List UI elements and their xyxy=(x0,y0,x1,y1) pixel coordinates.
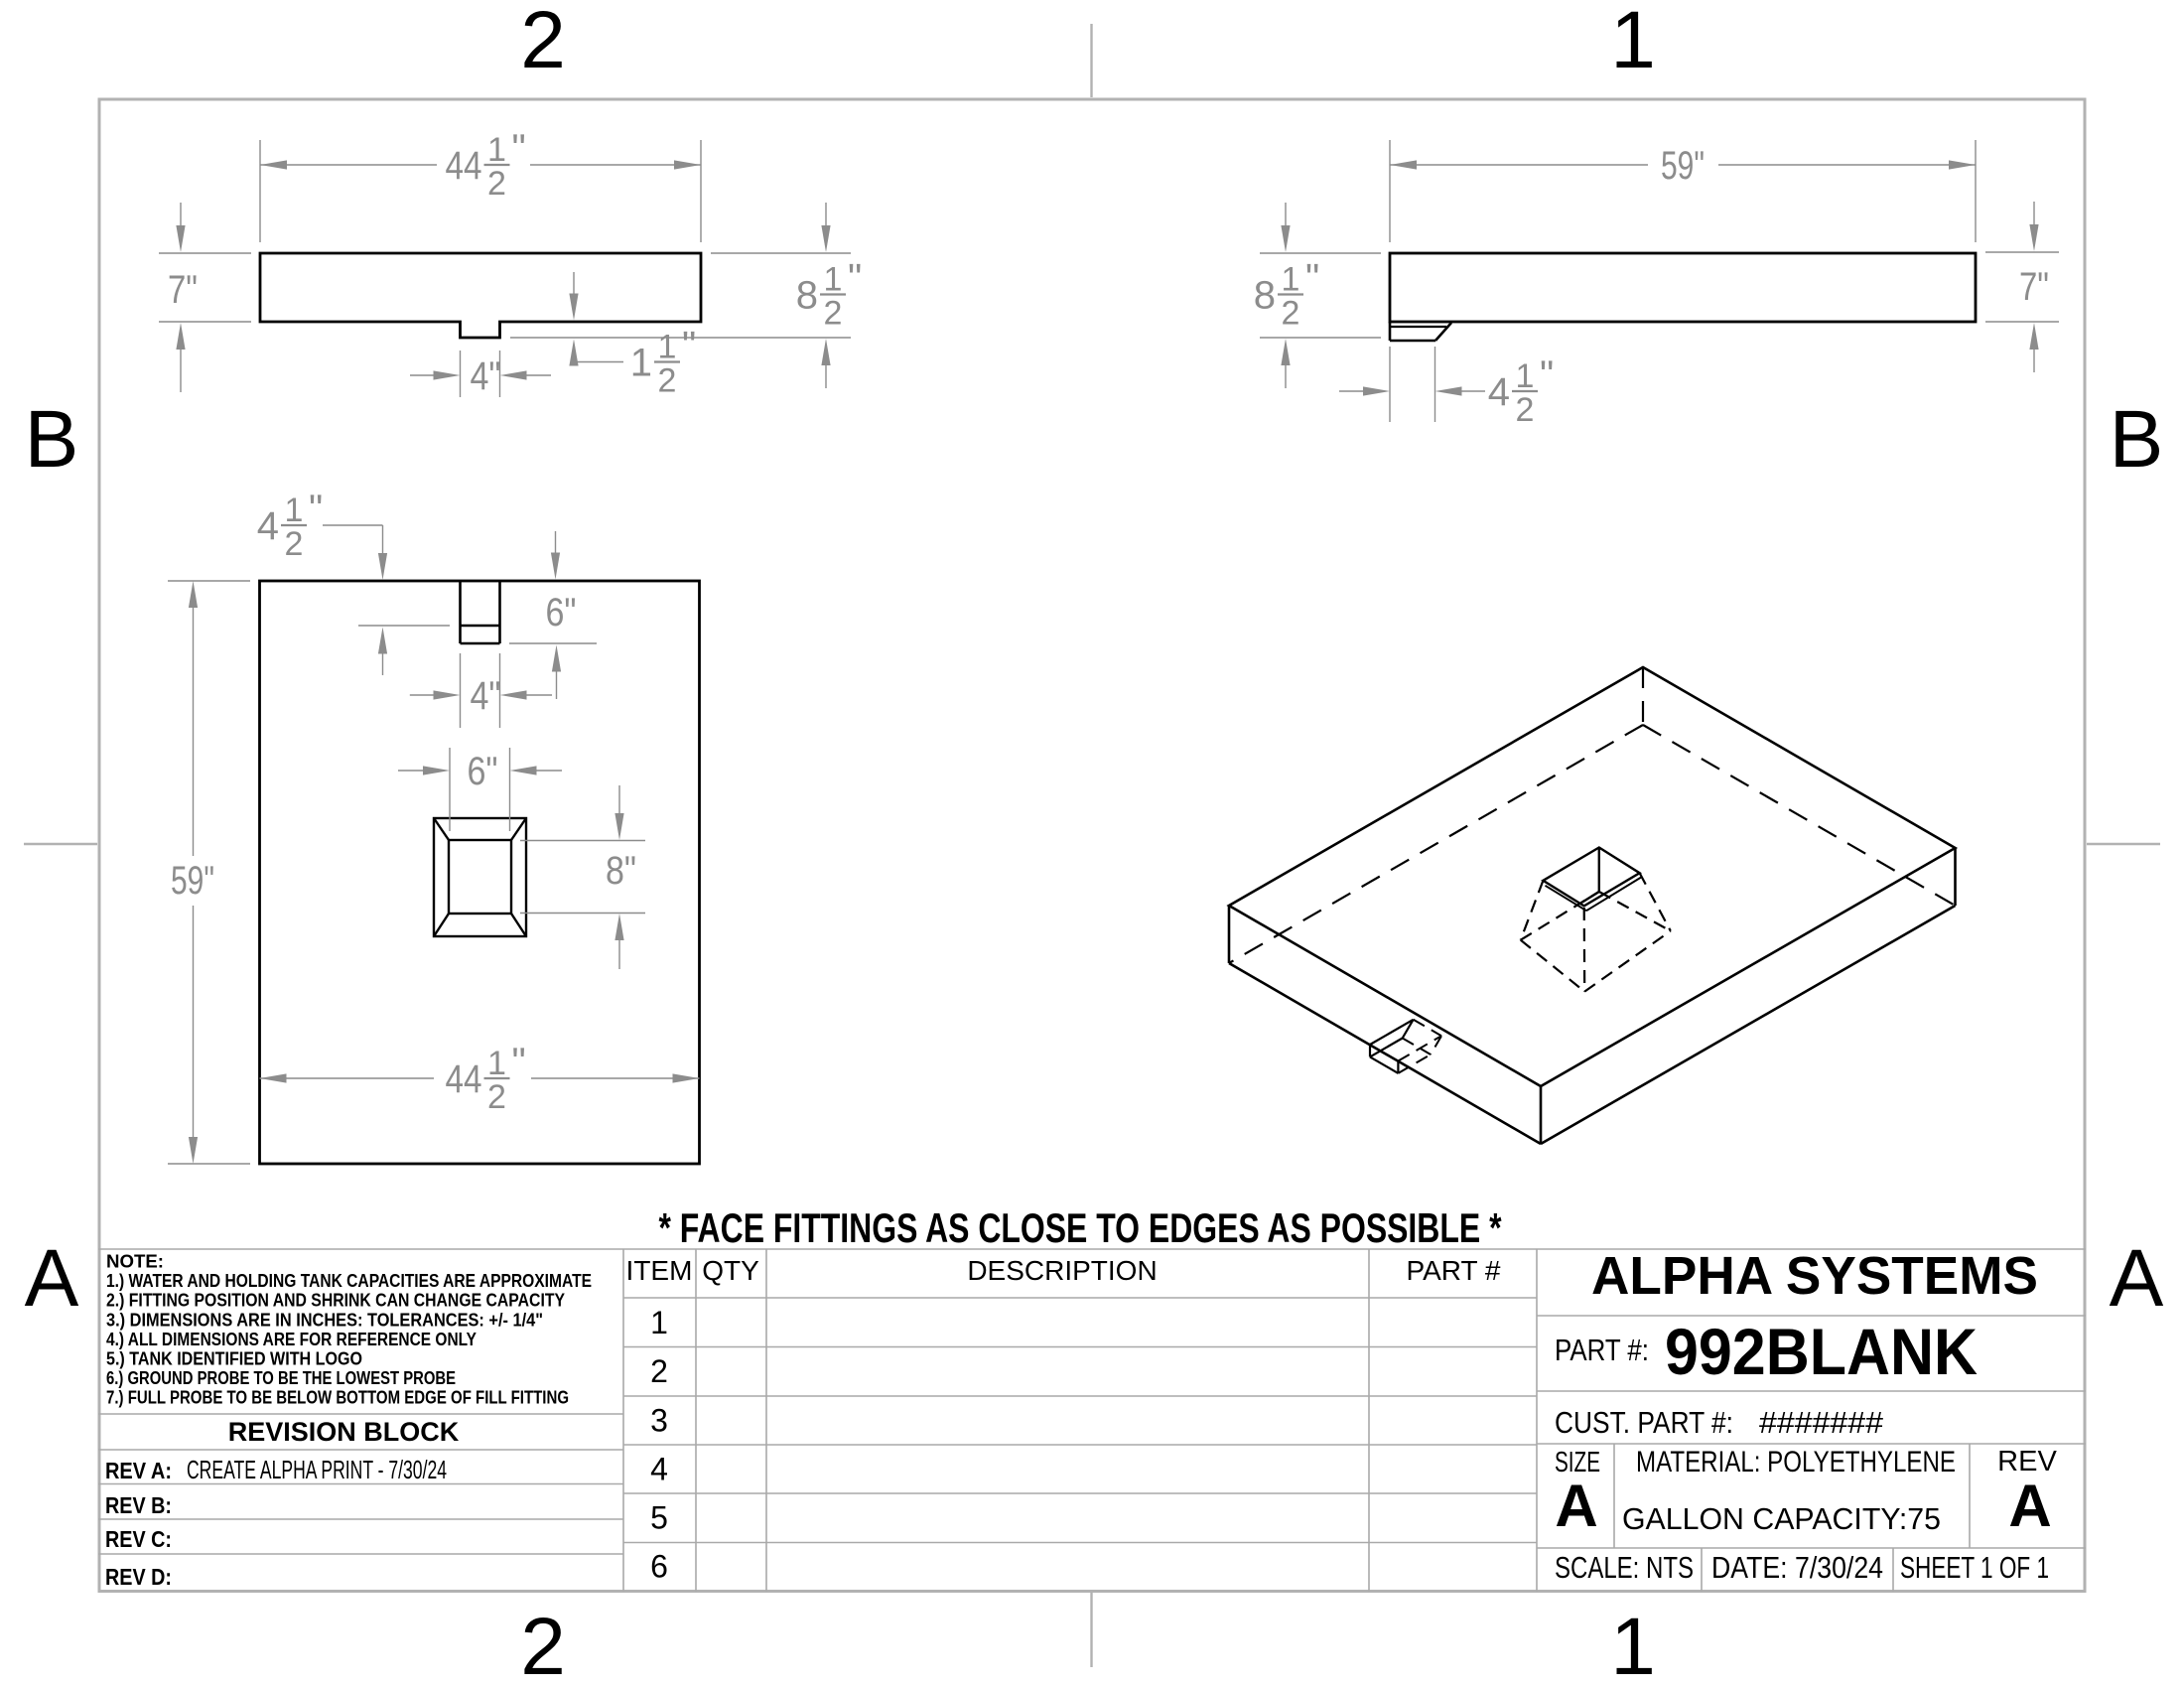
svg-text:* FACE FITTINGS AS CLOSE TO ED: * FACE FITTINGS AS CLOSE TO EDGES AS POS… xyxy=(659,1204,1502,1251)
svg-text:": " xyxy=(682,325,696,368)
svg-text:": " xyxy=(1305,257,1319,301)
svg-text:1: 1 xyxy=(658,329,677,366)
svg-text:2: 2 xyxy=(650,1353,668,1389)
svg-text:4: 4 xyxy=(1488,370,1510,414)
svg-text:": " xyxy=(1540,353,1554,397)
svg-text:2: 2 xyxy=(487,1078,506,1116)
svg-text:2: 2 xyxy=(520,1602,566,1688)
svg-text:7": 7" xyxy=(168,268,198,312)
svg-text:B: B xyxy=(2110,394,2164,485)
svg-text:6: 6 xyxy=(650,1549,668,1585)
svg-text:A: A xyxy=(1555,1473,1597,1539)
svg-text:2: 2 xyxy=(1516,391,1535,429)
svg-text:MATERIAL: POLYETHYLENE: MATERIAL: POLYETHYLENE xyxy=(1636,1446,1956,1478)
svg-text:2.) FITTING POSITION AND SHRIN: 2.) FITTING POSITION AND SHRINK CAN CHAN… xyxy=(106,1291,565,1311)
svg-text:1: 1 xyxy=(1282,261,1300,299)
svg-text:QTY: QTY xyxy=(702,1255,759,1286)
svg-text:44: 44 xyxy=(446,144,482,188)
svg-text:": " xyxy=(512,127,526,171)
svg-text:1: 1 xyxy=(1610,1602,1656,1688)
svg-text:B: B xyxy=(25,394,79,485)
svg-text:2: 2 xyxy=(520,0,566,85)
svg-text:5.) TANK IDENTIFIED WITH LOGO: 5.) TANK IDENTIFIED WITH LOGO xyxy=(106,1349,362,1369)
svg-text:REV B:: REV B: xyxy=(105,1492,172,1518)
svg-text:PART #: PART # xyxy=(1407,1255,1501,1286)
svg-text:2: 2 xyxy=(1282,295,1300,333)
svg-text:GALLON CAPACITY:75: GALLON CAPACITY:75 xyxy=(1622,1501,1941,1536)
svg-text:CUST. PART #:: CUST. PART #: xyxy=(1555,1405,1733,1440)
svg-text:1: 1 xyxy=(630,342,652,385)
svg-text:SCALE: NTS: SCALE: NTS xyxy=(1555,1550,1694,1585)
svg-text:8: 8 xyxy=(1254,274,1276,318)
svg-text:8": 8" xyxy=(606,849,636,893)
svg-text:4: 4 xyxy=(257,504,279,548)
svg-text:1: 1 xyxy=(650,1305,668,1340)
svg-text:ALPHA SYSTEMS: ALPHA SYSTEMS xyxy=(1591,1246,2038,1306)
svg-text:": " xyxy=(309,488,323,531)
svg-text:6": 6" xyxy=(546,591,577,634)
svg-text:1: 1 xyxy=(1516,357,1535,395)
svg-text:CREATE ALPHA PRINT - 7/30/24: CREATE ALPHA PRINT - 7/30/24 xyxy=(187,1455,447,1484)
svg-text:DESCRIPTION: DESCRIPTION xyxy=(967,1255,1157,1286)
svg-text:REV D:: REV D: xyxy=(105,1564,172,1590)
svg-text:59": 59" xyxy=(1661,144,1705,188)
svg-text:A: A xyxy=(2008,1473,2051,1539)
svg-text:2: 2 xyxy=(658,362,677,400)
svg-text:3.) DIMENSIONS ARE IN INCHES:: 3.) DIMENSIONS ARE IN INCHES: TOLERANCES… xyxy=(106,1310,543,1330)
svg-text:REV A:: REV A: xyxy=(105,1458,172,1483)
svg-text:7": 7" xyxy=(2019,265,2049,309)
svg-text:SHEET 1 OF 1: SHEET 1 OF 1 xyxy=(1900,1550,2049,1585)
svg-text:NOTE:: NOTE: xyxy=(106,1252,164,1272)
svg-text:2: 2 xyxy=(824,295,843,333)
svg-text:REV C:: REV C: xyxy=(105,1526,172,1552)
svg-text:6": 6" xyxy=(468,750,498,793)
svg-text:8: 8 xyxy=(796,274,818,318)
svg-text:PART #:: PART #: xyxy=(1555,1333,1649,1367)
svg-text:2: 2 xyxy=(487,165,506,203)
svg-text:1: 1 xyxy=(285,492,304,529)
svg-text:59": 59" xyxy=(171,859,214,903)
svg-text:4": 4" xyxy=(471,354,501,398)
svg-text:2: 2 xyxy=(285,525,304,563)
svg-text:3: 3 xyxy=(650,1403,668,1439)
svg-text:1: 1 xyxy=(487,131,506,169)
svg-text:A: A xyxy=(2110,1233,2164,1324)
svg-text:#######: ####### xyxy=(1759,1405,1884,1440)
svg-text:": " xyxy=(512,1041,526,1084)
svg-text:1: 1 xyxy=(487,1045,506,1082)
svg-text:A: A xyxy=(25,1233,79,1324)
svg-text:4: 4 xyxy=(650,1452,668,1487)
svg-text:ITEM: ITEM xyxy=(626,1255,693,1286)
svg-text:992BLANK: 992BLANK xyxy=(1665,1315,1978,1388)
svg-text:DATE: 7/30/24: DATE: 7/30/24 xyxy=(1711,1550,1883,1585)
svg-text:6.) GROUND PROBE TO BE THE LOW: 6.) GROUND PROBE TO BE THE LOWEST PROBE xyxy=(106,1368,456,1388)
svg-text:4.) ALL DIMENSIONS ARE FOR REF: 4.) ALL DIMENSIONS ARE FOR REFERENCE ONL… xyxy=(106,1330,477,1349)
svg-text:1.) WATER AND HOLDING TANK CAP: 1.) WATER AND HOLDING TANK CAPACITIES AR… xyxy=(106,1271,592,1291)
svg-text:REVISION BLOCK: REVISION BLOCK xyxy=(228,1417,460,1447)
svg-text:5: 5 xyxy=(650,1500,668,1536)
svg-text:": " xyxy=(848,257,862,301)
svg-text:4": 4" xyxy=(471,674,501,718)
svg-text:1: 1 xyxy=(1610,0,1656,85)
svg-text:44: 44 xyxy=(446,1057,482,1101)
svg-text:1: 1 xyxy=(824,261,843,299)
svg-text:7.) FULL PROBE TO BE BELOW BOT: 7.) FULL PROBE TO BE BELOW BOTTOM EDGE O… xyxy=(106,1388,569,1408)
